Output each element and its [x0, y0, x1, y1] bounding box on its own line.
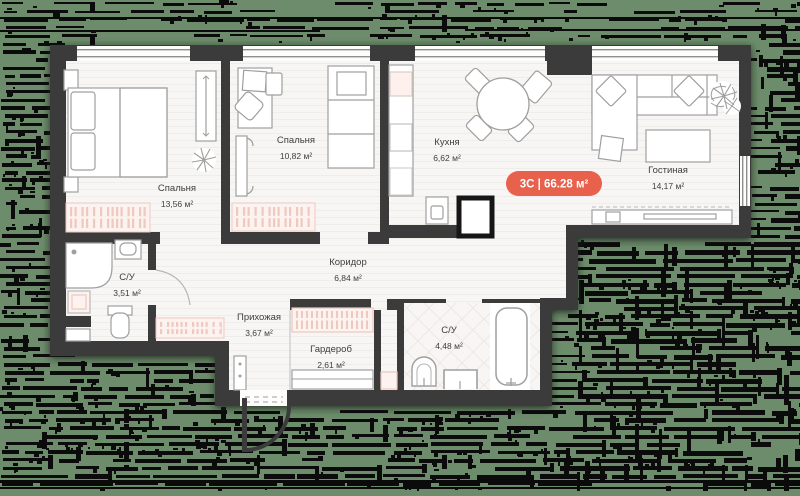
svg-text:6,84 м²: 6,84 м² [334, 273, 362, 283]
svg-text:2,61 м²: 2,61 м² [317, 360, 345, 370]
svg-text:Коридор: Коридор [329, 257, 367, 268]
svg-text:14,17 м²: 14,17 м² [652, 181, 684, 191]
svg-text:4,48 м²: 4,48 м² [435, 341, 463, 351]
svg-text:6,62 м²: 6,62 м² [433, 153, 461, 163]
svg-text:Прихожая: Прихожая [237, 312, 281, 323]
svg-text:10,82 м²: 10,82 м² [280, 151, 312, 161]
svg-text:3С | 66.28 м²: 3С | 66.28 м² [520, 179, 589, 191]
svg-text:Гардероб: Гардероб [310, 344, 352, 355]
svg-text:С/У: С/У [441, 325, 458, 336]
svg-text:Спальня: Спальня [277, 135, 315, 146]
svg-text:Спальня: Спальня [158, 183, 196, 194]
svg-text:Кухня: Кухня [434, 137, 459, 148]
svg-text:13,56 м²: 13,56 м² [161, 199, 193, 209]
svg-text:С/У: С/У [119, 272, 136, 283]
svg-text:3,67 м²: 3,67 м² [245, 328, 273, 338]
svg-text:Гостиная: Гостиная [648, 165, 688, 176]
svg-text:3,51 м²: 3,51 м² [113, 288, 141, 298]
